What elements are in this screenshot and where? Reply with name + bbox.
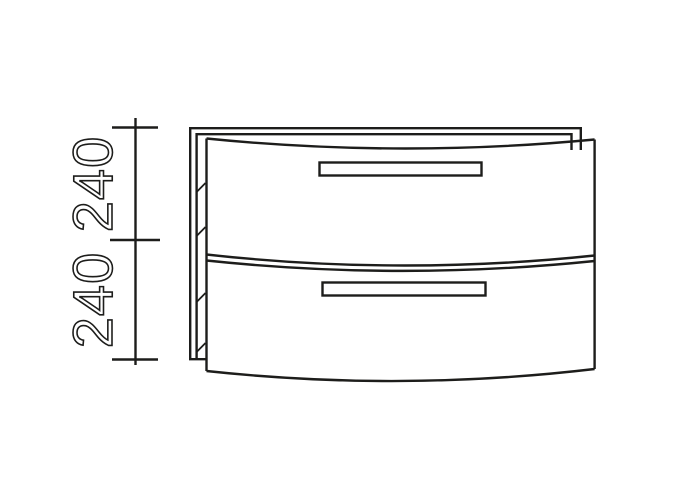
panel-joint-mark-4 (197, 343, 206, 352)
dimension-label-lower: 240 (61, 252, 124, 348)
bottom-drawer-bottom-edge (207, 369, 595, 381)
bottom-drawer-handle (323, 283, 486, 296)
panel-joint-mark-1 (197, 183, 206, 192)
cabinet-elevation-drawing: 240 240 (0, 0, 684, 487)
top-drawer-top-edge (207, 139, 595, 149)
technical-drawing-canvas: 240 240 (0, 0, 684, 487)
dimension-annotation: 240 240 (61, 118, 160, 365)
drawer-fronts (207, 139, 595, 382)
top-drawer-handle (320, 163, 482, 176)
panel-joint-mark-2 (197, 227, 206, 236)
top-drawer-bottom-edge (207, 255, 595, 266)
dimension-label-upper: 240 (61, 136, 124, 232)
panel-joint-mark-3 (197, 293, 206, 302)
